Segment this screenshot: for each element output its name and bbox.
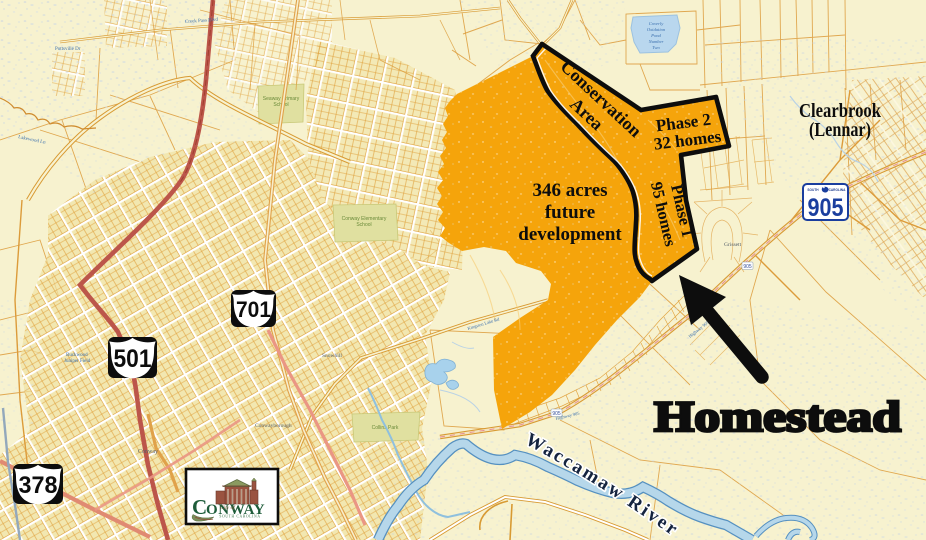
svg-text:Juniper Field: Juniper Field [64,359,91,364]
svg-text:SOUTH: SOUTH [807,188,819,192]
svg-text:Grissett: Grissett [724,242,742,248]
svg-text:Conway: Conway [138,449,158,455]
svg-text:future: future [545,202,595,223]
svg-text:905: 905 [743,264,752,270]
svg-text:Homestead: Homestead [654,394,901,441]
svg-text:501: 501 [114,345,152,373]
svg-text:Pond: Pond [650,33,661,38]
svg-text:Oxidation: Oxidation [647,27,666,32]
svg-text:Coverly: Coverly [649,21,665,26]
svg-text:905: 905 [808,194,844,222]
svg-text:Pottsville Dr: Pottsville Dr [55,47,81,52]
svg-text:Conwayborough: Conwayborough [255,423,292,429]
svg-text:Two: Two [652,45,660,50]
svg-text:(Lennar): (Lennar) [809,119,871,141]
svg-text:346 acres: 346 acres [532,180,607,201]
svg-text:development: development [518,224,622,245]
svg-text:701: 701 [236,297,271,322]
svg-text:SOUTH CAROLINA: SOUTH CAROLINA [219,515,260,519]
svg-text:School: School [356,222,371,228]
svg-text:Number: Number [648,39,664,44]
svg-text:CAROLINA: CAROLINA [829,188,847,192]
svg-text:378: 378 [19,472,58,499]
svg-text:Buckwood: Buckwood [66,353,88,358]
svg-text:Snowhill: Snowhill [322,353,342,359]
svg-text:City of: City of [220,504,236,511]
